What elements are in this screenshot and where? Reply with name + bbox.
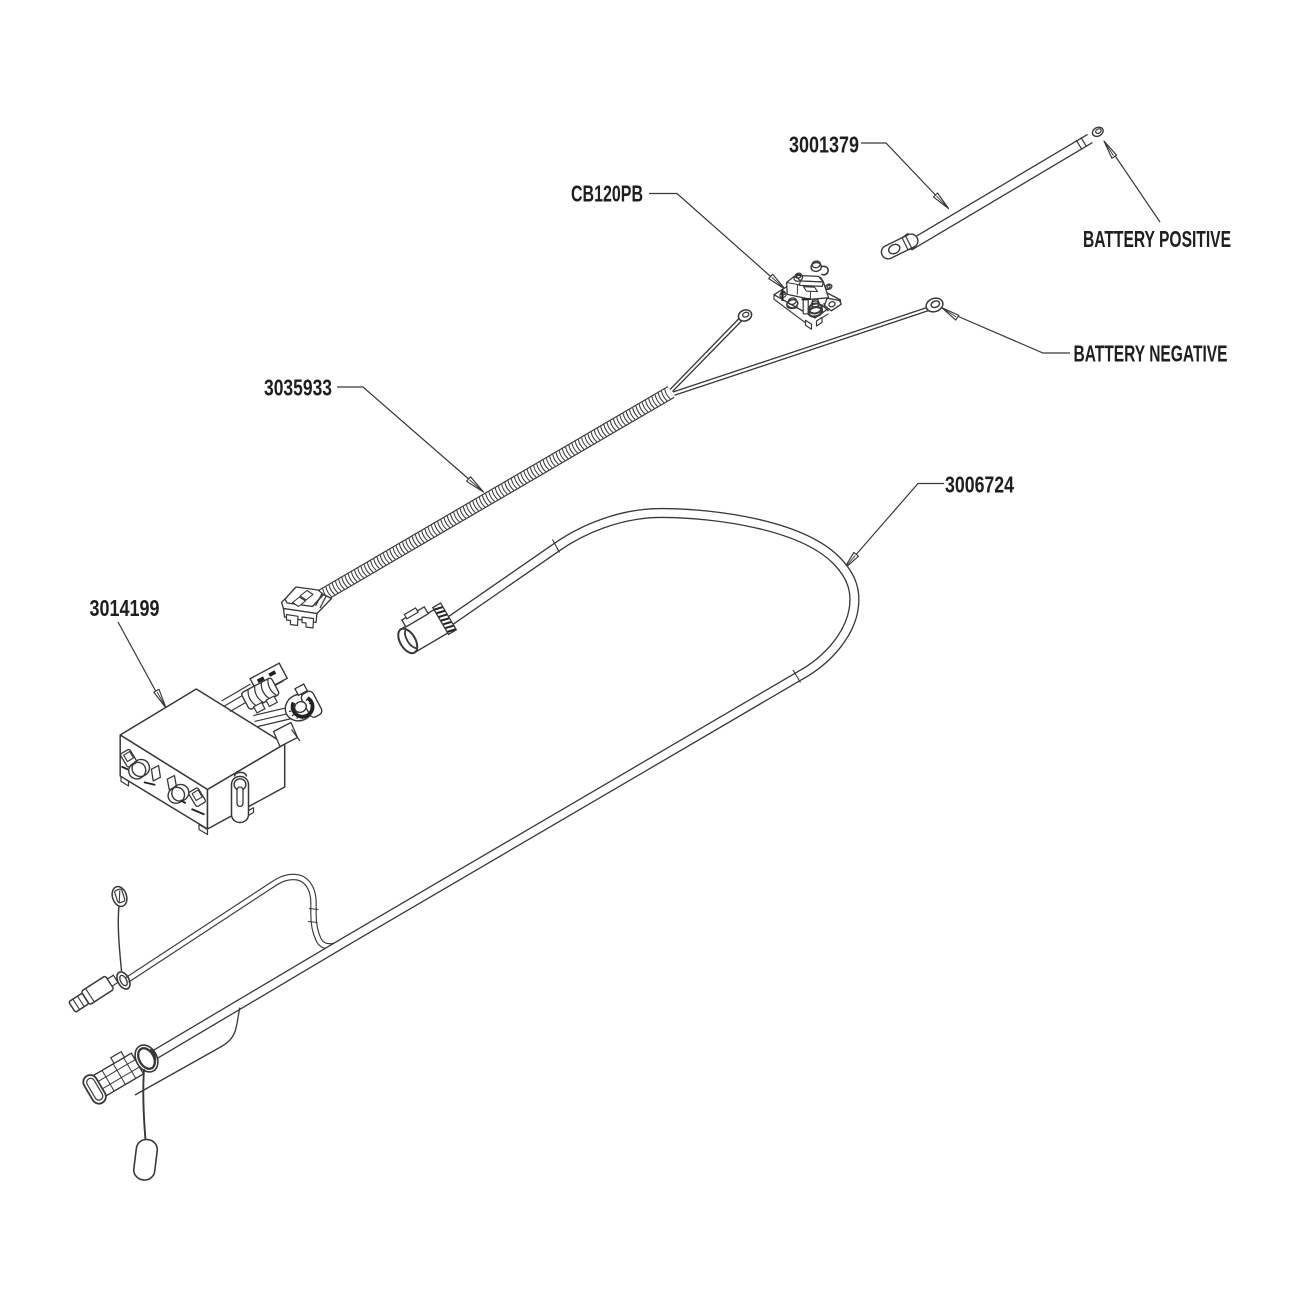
svg-text:BATTERY NEGATIVE: BATTERY NEGATIVE [1074,341,1228,367]
svg-text:CB120PB: CB120PB [571,181,643,207]
svg-text:BATTERY POSITIVE: BATTERY POSITIVE [1083,226,1231,252]
svg-text:3001379: 3001379 [789,132,859,158]
svg-text:3014199: 3014199 [90,595,160,621]
svg-text:3035933: 3035933 [264,375,332,401]
svg-text:3006724: 3006724 [945,472,1014,498]
